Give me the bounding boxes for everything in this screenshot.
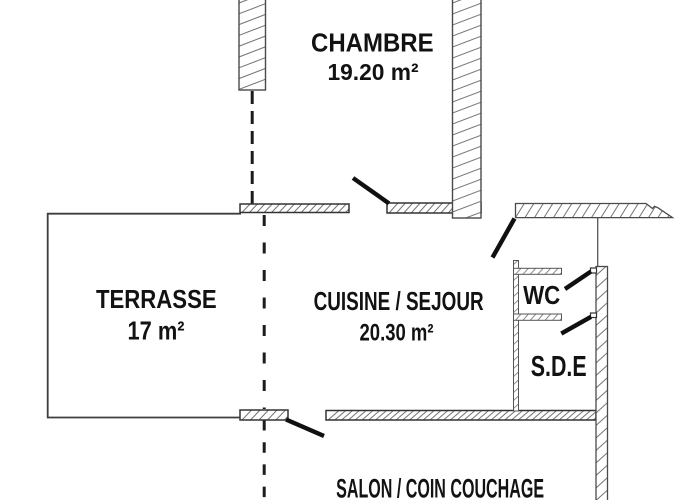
svg-text:TERRASSE: TERRASSE — [96, 286, 217, 315]
svg-text:20.30 m²: 20.30 m² — [360, 318, 434, 346]
svg-text:17 m²: 17 m² — [127, 317, 184, 346]
svg-text:CHAMBRE: CHAMBRE — [311, 29, 434, 58]
svg-text:WC: WC — [523, 282, 560, 311]
svg-text:SALON / COIN COUCHAGE: SALON / COIN COUCHAGE — [336, 473, 544, 500]
svg-text:S.D.E: S.D.E — [531, 351, 587, 383]
svg-text:19.20 m²: 19.20 m² — [327, 59, 418, 85]
svg-text:CUISINE / SEJOUR: CUISINE / SEJOUR — [314, 286, 484, 316]
